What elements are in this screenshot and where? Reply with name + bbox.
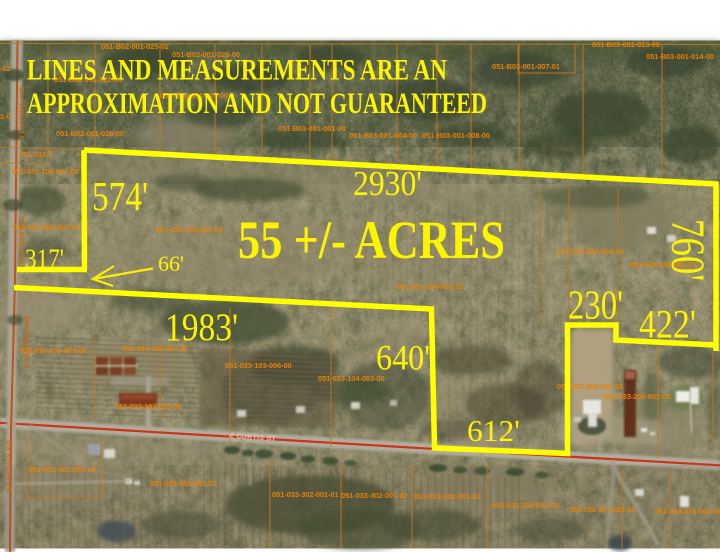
svg-text:APPROXIMATION AND NOT GUARANTE: APPROXIMATION AND NOT GUARANTEED <box>27 87 487 120</box>
svg-text:1983': 1983' <box>165 305 238 349</box>
svg-text:051-033-103-010-00: 051-033-103-010-00 <box>115 402 182 411</box>
svg-text:051-033-104-003-00: 051-033-104-003-00 <box>318 374 385 383</box>
svg-text:2930': 2930' <box>353 164 422 203</box>
svg-text:640': 640' <box>376 338 430 378</box>
svg-text:051-033-301-001-00: 051-033-301-001-00 <box>569 505 636 514</box>
svg-text:760': 760' <box>661 219 714 281</box>
svg-text:051-B02-001-028-00: 051-B02-001-028-00 <box>56 129 124 138</box>
svg-text:55 +/- ACRES: 55 +/- ACRES <box>238 210 505 270</box>
svg-text:051-033-202-004-00: 051-033-202-004-00 <box>557 247 624 256</box>
svg-text:051-033-302-001-03: 051-033-302-001-03 <box>414 492 481 501</box>
svg-text:051-B02-001-025-02: 051-B02-001-025-02 <box>101 42 169 51</box>
svg-text:1-0: 1-0 <box>0 112 11 121</box>
svg-text:051-B03-001-008-00: 051-B03-001-008-00 <box>422 131 490 140</box>
svg-text:051-B03-001-013-00: 051-B03-001-013-00 <box>592 40 660 49</box>
svg-text:051-033-1: 051-033-1 <box>19 150 52 159</box>
svg-text:051-033-104-001-02: 051-033-104-001-02 <box>397 282 464 291</box>
svg-text:N EASTMAN AVE: N EASTMAN AVE <box>6 438 13 492</box>
svg-text:612': 612' <box>467 413 520 448</box>
svg-text:N EASTMAN AVE: N EASTMAN AVE <box>19 86 26 140</box>
svg-text:230': 230' <box>568 282 623 328</box>
svg-text:LINES AND MEASUREMENTS ARE AN: LINES AND MEASUREMENTS ARE AN <box>27 54 447 87</box>
svg-text:051-B03-001-014-00: 051-B03-001-014-00 <box>646 52 714 61</box>
svg-text:051-B03-001-007-01: 051-B03-001-007-01 <box>492 62 560 71</box>
svg-text:051-033-202-001-02: 051-033-202-001-02 <box>604 392 671 401</box>
svg-text:051-033-301-001-04: 051-033-301-001-04 <box>29 465 97 474</box>
svg-text:051-033-302-002-00: 051-033-302-002-00 <box>492 501 559 510</box>
svg-text:051-B03-001-001-00: 051-B03-001-001-00 <box>278 124 346 133</box>
svg-text:051-033-103-002-02: 051-033-103-002-02 <box>156 226 223 235</box>
svg-text:574': 574' <box>92 173 148 219</box>
svg-text:N EASTMAN AVE: N EASTMAN AVE <box>24 314 31 368</box>
svg-text:66': 66' <box>158 251 184 276</box>
svg-text:317': 317' <box>25 244 64 274</box>
svg-text:051-033-001-002-00: 051-033-001-002-00 <box>655 507 720 516</box>
svg-text:051-033-302-001-02: 051-033-302-001-02 <box>341 491 408 500</box>
svg-text:-02: -02 <box>0 64 11 73</box>
svg-text:051-033-301-001-01: 051-033-301-001-01 <box>150 479 217 488</box>
svg-text:051-033-103-006-00: 051-033-103-006-00 <box>225 361 292 370</box>
svg-text:051-B03-001-004-00: 051-B03-001-004-00 <box>349 131 417 140</box>
svg-text:051-033-302-001-01: 051-033-302-001-01 <box>272 490 339 499</box>
svg-text:422': 422' <box>639 302 696 347</box>
svg-text:051-033-102-001-00: 051-033-102-001-00 <box>12 167 79 176</box>
